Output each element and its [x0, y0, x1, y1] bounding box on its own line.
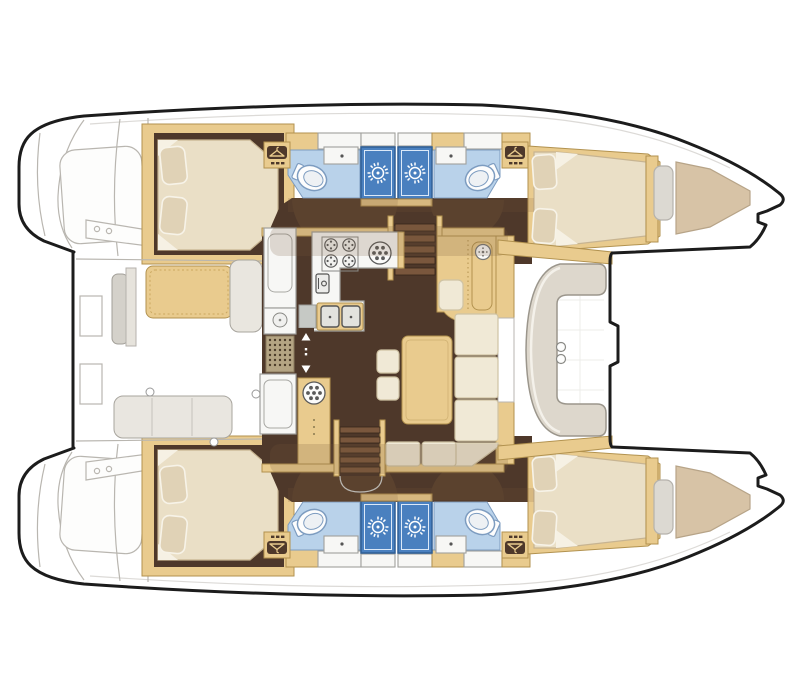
drainboard — [299, 305, 316, 328]
drink-holder — [252, 390, 260, 398]
fwd-deck-edge — [610, 253, 618, 447]
aft-cockpit — [73, 252, 262, 448]
helm-seat-panel — [230, 260, 262, 332]
catamaran-floor-plan — [0, 0, 800, 700]
stool — [377, 350, 399, 373]
saloon-table — [402, 336, 452, 424]
fwd-cockpit — [498, 240, 618, 460]
side-bench-back — [126, 268, 136, 346]
cockpit-table — [146, 266, 232, 318]
aft-cabinet — [260, 374, 296, 434]
fwd-cockpit-door — [498, 318, 514, 402]
c-bench — [526, 264, 606, 436]
fridge-icon — [316, 274, 329, 293]
stool — [377, 377, 399, 400]
drink-holder — [210, 438, 218, 446]
cup-holder — [557, 343, 566, 352]
floor-plan-canvas — [0, 0, 800, 700]
double-sink — [317, 303, 363, 330]
drink-holder — [146, 388, 154, 396]
cup-holder — [557, 355, 566, 364]
sliding-door — [298, 328, 314, 378]
nav-seat — [439, 280, 463, 310]
vent-grate-icon — [266, 336, 294, 372]
aft-bench — [114, 396, 232, 438]
